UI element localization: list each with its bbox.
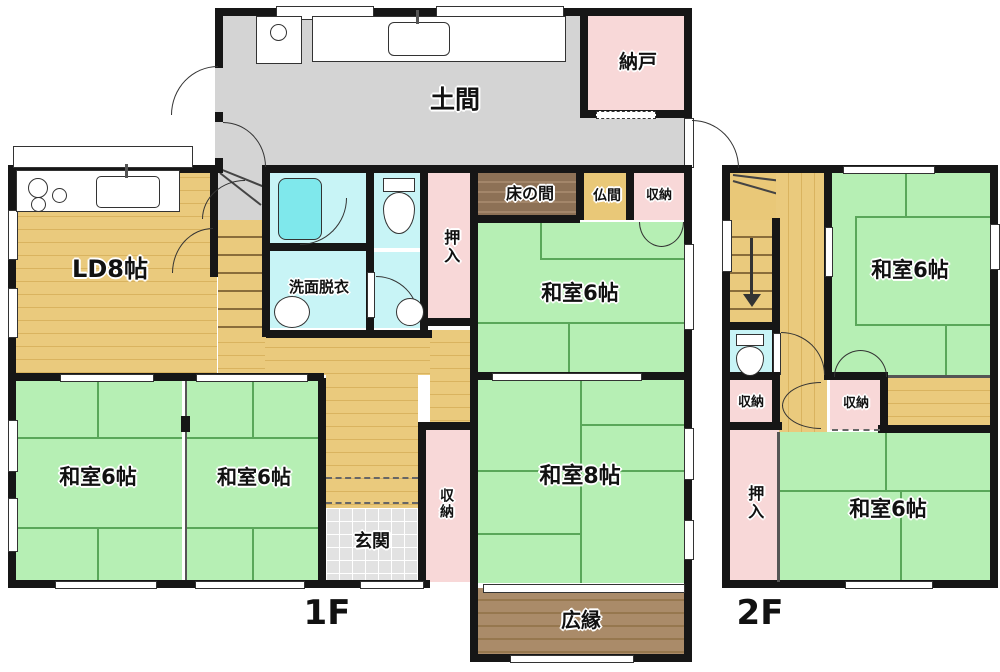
label-oshiire-2f: 押入 xyxy=(740,466,768,540)
bathtub xyxy=(278,178,322,240)
wall-stub xyxy=(181,416,190,432)
sliding-doors xyxy=(492,373,642,381)
wall xyxy=(580,8,588,118)
tatami-line xyxy=(855,216,990,218)
label-nando: 納戸 xyxy=(598,48,678,78)
wall xyxy=(878,425,992,433)
wall xyxy=(418,428,426,585)
door-swing xyxy=(171,66,218,115)
label-ld: LD8帖 xyxy=(30,252,190,288)
fusuma-line xyxy=(777,432,780,582)
window xyxy=(8,210,18,260)
window xyxy=(8,288,18,338)
label-storage-2f-mid: 収納 xyxy=(833,392,879,416)
tatami-line xyxy=(780,490,990,492)
label-butsuma: 仏間 xyxy=(584,182,630,210)
tatami-line xyxy=(540,222,542,260)
label-doma: 土間 xyxy=(390,80,520,120)
wall xyxy=(418,422,476,430)
wall xyxy=(420,318,476,326)
tatami-line xyxy=(885,432,887,492)
tatami-line xyxy=(905,170,907,218)
glass-doors-hiroen xyxy=(483,584,685,593)
floor-plan-canvas: 土間 納戸 LD8帖 床の間 仏間 収納 押入 洗面脱衣 和室6帖 和室8帖 玄… xyxy=(0,0,1000,672)
stair-arrow-down-icon xyxy=(743,294,761,307)
tatami-line xyxy=(186,437,320,439)
tap-icon xyxy=(416,10,419,24)
tatami-line xyxy=(97,527,99,582)
window xyxy=(990,224,1000,270)
wall xyxy=(8,373,16,588)
label-senmen: 洗面脱衣 xyxy=(286,262,352,314)
corridor-2f-east xyxy=(884,378,990,430)
hallway-1f xyxy=(218,330,265,378)
window xyxy=(8,498,18,552)
nando-opening xyxy=(596,111,656,119)
wall xyxy=(880,378,888,432)
label-floor-2f: 2F xyxy=(728,594,792,634)
toilet-tank xyxy=(736,334,764,346)
window xyxy=(60,374,154,382)
tatami-line xyxy=(252,527,254,582)
label-washitsu8: 和室8帖 xyxy=(515,462,645,492)
tatami-line xyxy=(855,324,990,326)
tatami-line xyxy=(476,533,580,535)
door-opening xyxy=(825,227,833,277)
label-genkan: 玄関 xyxy=(334,528,410,556)
door-opening xyxy=(773,333,781,375)
hallway-1f xyxy=(430,330,470,430)
staircase-1f xyxy=(218,220,265,332)
label-storage-2f-west: 収納 xyxy=(736,382,766,424)
window xyxy=(8,420,18,472)
window xyxy=(684,428,694,480)
label-storage-genkan: 収納 xyxy=(432,468,460,540)
window xyxy=(684,520,694,560)
tatami-line xyxy=(476,322,684,324)
sliding-door-line xyxy=(326,477,418,479)
wall xyxy=(262,165,270,337)
window xyxy=(843,166,935,174)
label-floor-1f: 1F xyxy=(295,594,359,634)
window xyxy=(55,581,157,589)
label-washitsu6-2f-south: 和室6帖 xyxy=(828,494,948,524)
toilet-tank xyxy=(383,178,415,192)
label-washitsu6-2f-north: 和室6帖 xyxy=(845,255,975,285)
label-storage-hall: 収納 xyxy=(634,182,684,210)
stair-arrow-line xyxy=(750,238,753,296)
fusuma-line xyxy=(185,381,187,580)
wall xyxy=(266,330,432,338)
label-washitsu6-sw1: 和室6帖 xyxy=(36,462,160,492)
label-hiroen: 広縁 xyxy=(538,605,624,635)
kitchen-sink xyxy=(96,176,160,208)
tatami-line xyxy=(97,378,99,438)
window xyxy=(196,374,308,382)
tatami-line xyxy=(252,378,254,438)
tatami-line xyxy=(14,437,182,439)
stove-burner-icon xyxy=(28,178,48,198)
door-opening xyxy=(367,272,375,318)
window xyxy=(510,655,634,663)
label-washitsu6-sw2: 和室6帖 xyxy=(194,462,314,492)
tatami-line xyxy=(540,258,684,260)
entrance-door xyxy=(360,581,424,589)
wall xyxy=(722,322,778,330)
faucet-icon xyxy=(270,24,287,41)
corridor-line xyxy=(888,375,990,378)
wall xyxy=(476,215,580,223)
label-washitsu6-east: 和室6帖 xyxy=(520,278,640,308)
wash-basin xyxy=(396,298,424,326)
wall xyxy=(470,585,478,662)
counter-sink xyxy=(388,22,450,56)
tatami-line xyxy=(568,322,570,374)
tap-icon xyxy=(125,164,128,178)
label-oshiire-1f: 押入 xyxy=(435,210,465,284)
window xyxy=(722,220,732,272)
tatami-line xyxy=(945,324,947,375)
door-swing xyxy=(692,120,739,168)
stove-burner-icon xyxy=(31,197,46,212)
wall xyxy=(318,378,326,588)
window xyxy=(195,581,305,589)
window xyxy=(684,244,694,330)
wall xyxy=(470,222,478,588)
tatami-line xyxy=(580,424,684,426)
hallway-1f xyxy=(326,375,418,508)
stove-burner-icon xyxy=(52,188,67,203)
wall xyxy=(215,16,223,68)
wall xyxy=(8,165,16,381)
sliding-door-line xyxy=(326,502,418,504)
window xyxy=(845,581,933,589)
sliding-door-line xyxy=(832,429,880,431)
wall xyxy=(270,243,370,251)
kitchen-bay-window xyxy=(13,146,193,168)
label-tokonoma: 床の間 xyxy=(482,179,578,209)
